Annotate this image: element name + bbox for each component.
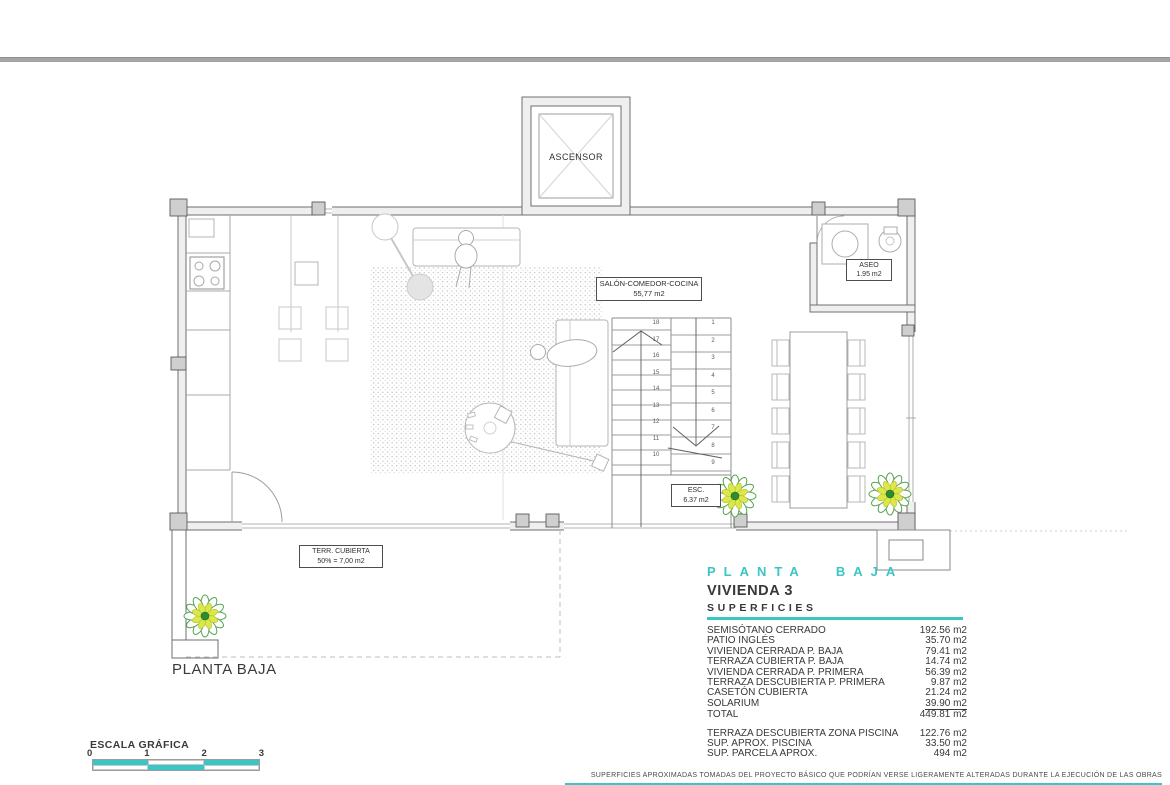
stair-step-numbers-left: 181716151413121110 (649, 320, 663, 458)
sofa-right (556, 320, 608, 446)
entry-door (232, 472, 282, 522)
person-figure (459, 231, 474, 246)
stair-step-number: 7 (711, 425, 714, 431)
scale-bar-graphic (92, 759, 260, 771)
terrace-name: TERR. CUBIERTA (301, 547, 381, 556)
terrace-area: 50% = 7,00 m2 (301, 557, 381, 566)
stair-step-number: 3 (711, 355, 714, 361)
scale-ticks: 0123 (87, 748, 264, 759)
row-label: TOTAL (707, 710, 738, 720)
stair-step-number: 2 (711, 338, 714, 344)
row-value: 449.81 m2 (920, 710, 967, 720)
scale-segment (93, 765, 148, 770)
stairs-area-label: ESC. 6.37 m2 (671, 484, 721, 507)
surfaces-panel: PLANTA BAJA VIVIENDA 3 SUPERFICIES SEMIS… (707, 564, 969, 760)
footer-accent-line (565, 783, 1162, 785)
stair-step-number: 14 (653, 386, 660, 392)
scale-tick: 0 (87, 748, 92, 759)
stair-step-number: 8 (711, 443, 714, 449)
scale-segment (148, 765, 203, 770)
scale-tick: 3 (259, 748, 264, 759)
stairs-area: 6.37 m2 (673, 496, 719, 505)
person-figure (531, 345, 546, 360)
aseo-area: 1.95 m2 (848, 270, 890, 279)
dining-table (790, 332, 847, 508)
panel-section-title: SUPERFICIES (707, 602, 969, 614)
aseo-name: ASEO (848, 261, 890, 270)
stair-step-number: 16 (653, 353, 660, 359)
stair-step-number: 10 (653, 452, 660, 458)
kitchen (186, 215, 230, 470)
floor-caption: PLANTA BAJA (172, 661, 277, 678)
scale-segment (204, 765, 259, 770)
surfaces-table: SEMISÓTANO CERRADO192.56 m2 PATIO INGLÉS… (707, 626, 967, 721)
stair-step-number: 5 (711, 390, 714, 396)
table-row-total: TOTAL449.81 m2 (707, 710, 967, 720)
stair-step-number: 12 (653, 419, 660, 425)
salon-name: SALÓN-COMEDOR-COCINA (598, 279, 700, 289)
stair-step-numbers-right: 123456789 (706, 320, 720, 466)
panel-floor-title: PLANTA BAJA (707, 564, 969, 579)
page: ASCENSOR SALÓN-COMEDOR-COCINA 55,77 m2 A… (0, 0, 1170, 785)
panel-divider (707, 617, 963, 620)
table-row: SUP. PARCELA APROX.494 m2 (707, 749, 967, 759)
stair-step-number: 9 (711, 460, 714, 466)
salon-area-label: SALÓN-COMEDOR-COCINA 55,77 m2 (596, 277, 702, 301)
stair-step-number: 13 (653, 403, 660, 409)
row-label: SUP. PARCELA APROX. (707, 749, 817, 759)
plant-icon (869, 473, 911, 515)
scale-tick: 2 (201, 748, 206, 759)
floor-lamp (372, 214, 398, 240)
stair-step-number: 6 (711, 408, 714, 414)
elevator-label: ASCENSOR (536, 152, 616, 162)
stair-step-number: 4 (711, 373, 714, 379)
salon-area: 55,77 m2 (598, 289, 700, 299)
stairs-name: ESC. (673, 486, 719, 495)
stair-step-number: 18 (653, 320, 660, 326)
kitchen-island (279, 215, 348, 361)
surfaces-table-extra: TERRAZA DESCUBIERTA ZONA PISCINA122.76 m… (707, 729, 967, 760)
stair-step-number: 17 (653, 337, 660, 343)
footer-disclaimer: SUPERFICIES APROXIMADAS TOMADAS DEL PROY… (542, 772, 1162, 779)
living-room (370, 214, 609, 520)
aseo-area-label: ASEO 1.95 m2 (846, 259, 892, 281)
panel-unit-title: VIVIENDA 3 (707, 583, 969, 599)
dining-area (772, 332, 865, 508)
plant-icon (184, 595, 226, 637)
stair-step-number: 11 (653, 436, 659, 442)
stair-step-number: 1 (711, 320, 714, 326)
scale-tick: 1 (144, 748, 149, 759)
terrace-area-label: TERR. CUBIERTA 50% = 7,00 m2 (299, 545, 383, 568)
stair-step-number: 15 (653, 370, 660, 376)
row-value: 494 m2 (934, 749, 967, 759)
